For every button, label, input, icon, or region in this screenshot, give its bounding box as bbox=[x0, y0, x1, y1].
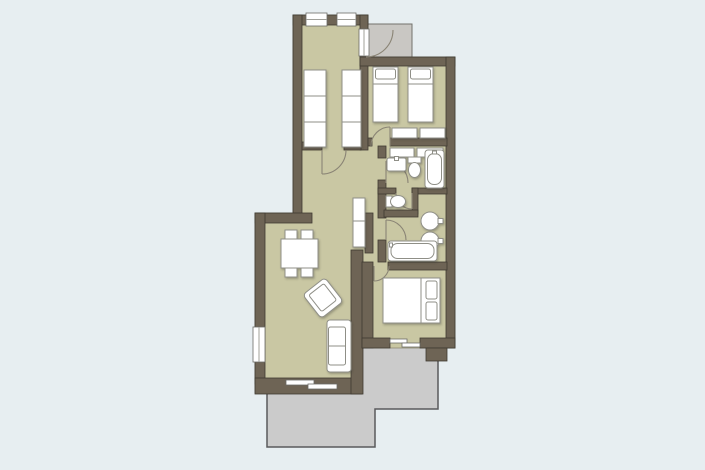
hall-cabinet bbox=[353, 198, 365, 247]
single-bed-1-pillow bbox=[376, 69, 396, 79]
wall-bedroom-west bbox=[362, 262, 373, 348]
wall-bedroom-south-a bbox=[362, 338, 390, 348]
wall-living-east-upper bbox=[365, 213, 373, 253]
bath2-basin-1 bbox=[421, 212, 439, 230]
double-bed-pillow bbox=[426, 281, 437, 299]
dining-table bbox=[281, 239, 318, 268]
chair bbox=[285, 230, 297, 239]
floor-plan-svg bbox=[0, 0, 705, 470]
chair bbox=[285, 268, 297, 277]
bath1-tub-faucet bbox=[433, 151, 437, 154]
wall-twinroom-north bbox=[360, 57, 455, 66]
double-bed-pillow bbox=[426, 302, 437, 320]
dresser-1 bbox=[392, 128, 417, 138]
single-bed-2-pillow bbox=[411, 69, 431, 79]
wall-bedroom-south-b bbox=[420, 338, 455, 348]
entry-porch bbox=[366, 24, 412, 57]
bath2-tub-faucet bbox=[390, 243, 393, 247]
terrace-door-bedroom-panel bbox=[402, 343, 420, 347]
dresser-2 bbox=[420, 128, 445, 138]
bath1-cabinet-1 bbox=[390, 148, 414, 157]
bath2-basin-1-faucet bbox=[438, 219, 443, 224]
chair bbox=[301, 268, 313, 277]
wall-bath1-wc-a bbox=[378, 188, 396, 194]
terrace-door-living-panel bbox=[308, 384, 337, 389]
wall-twinroom-south-b bbox=[390, 138, 447, 146]
wardrobe-left bbox=[304, 70, 326, 147]
bath1-sink-faucet bbox=[395, 157, 399, 161]
chair bbox=[301, 230, 313, 239]
terrace-door-bedroom-panel bbox=[390, 339, 407, 343]
bath2-basin-2-faucet bbox=[438, 239, 443, 244]
wall-bath-west-c bbox=[378, 240, 386, 262]
wall-bath2-bedroom bbox=[388, 262, 447, 270]
bath1-bathtub-inner bbox=[428, 154, 442, 185]
wall-corridor-west bbox=[293, 15, 302, 215]
wall-se-corner-block bbox=[426, 348, 447, 361]
wall-living-east-lower bbox=[351, 250, 363, 394]
bath2-bathtub-inner bbox=[391, 244, 434, 259]
floorplan-image bbox=[0, 0, 705, 470]
wc-toilet-bowl bbox=[391, 196, 406, 208]
wardrobe-right bbox=[342, 70, 361, 147]
bath1-toilet-bowl bbox=[409, 163, 421, 178]
wall-wc-south bbox=[384, 210, 418, 217]
wall-bath-west-a bbox=[378, 146, 386, 158]
wall-east-exterior bbox=[446, 57, 455, 348]
wall-corridor-north bbox=[293, 15, 368, 25]
